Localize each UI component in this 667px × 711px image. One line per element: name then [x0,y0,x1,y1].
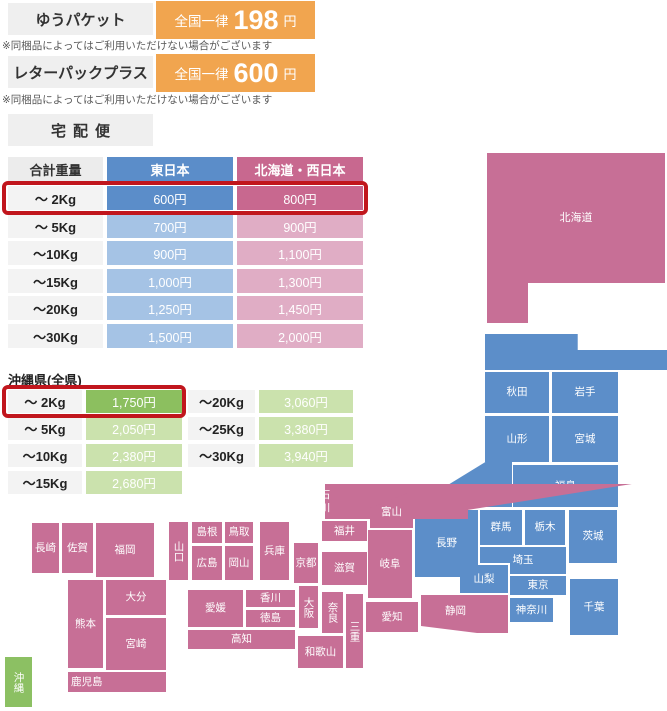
map-region-label: 徳島 [260,612,281,624]
okinawa-rate-cell: 3,380円 [259,417,353,440]
map-region-saga: 佐賀 [62,523,93,573]
letter-pack-rate-badge: 全国一律 600 円 [156,54,315,92]
map-region-label: 沖縄 [12,672,24,693]
map-region-label: 愛知 [382,611,403,623]
map-region-kagoshima: 鹿児島 [68,672,166,692]
map-region-label: 茨城 [583,530,604,542]
map-region-hokkaido-ext [487,283,528,323]
map-region-hokkaido: 北海道 [487,153,665,283]
map-region-label: 栃木 [535,521,556,533]
map-region-oita: 大分 [106,580,166,615]
okinawa-rate-cell: 2,380円 [86,444,182,467]
map-region-yamagata: 山形 [485,416,549,462]
okinawa-weight-cell: 〜 5Kg [8,417,82,440]
map-region-tochigi: 栃木 [525,510,565,545]
map-region-label: 佐賀 [67,542,88,554]
weight-cell: 〜10Kg [8,241,103,265]
map-region-okayama: 岡山 [225,546,253,580]
disclaimer-note: ※同梱品によってはご利用いただけない場合がございます [2,38,272,53]
map-region-mie: 三重 [346,594,363,668]
map-region-label: 鳥取 [229,526,250,538]
map-region-label: 岡山 [229,557,250,569]
map-region-label: 福井 [334,525,355,537]
map-region-shimane: 島根 [192,522,222,543]
map-region-iwate: 岩手 [552,372,618,413]
map-region-label: 大阪 [302,597,314,618]
okinawa-rate-cell: 3,060円 [259,390,353,413]
map-region-label: 奈良 [326,602,338,623]
map-region-label: 宮城 [575,433,596,445]
rate-amount: 198 [233,7,278,34]
weight-cell: 〜15Kg [8,269,103,293]
map-region-nara: 奈良 [322,592,343,633]
rate-cell-east: 1,500円 [107,324,233,348]
map-region-label: 鹿児島 [71,676,103,688]
rate-cell-west: 1,450円 [237,296,363,320]
map-region-okinawa: 沖縄 [5,657,32,707]
map-region-label: 群馬 [491,521,512,533]
map-region-hiroshima: 広島 [192,546,222,580]
map-region-label: 三重 [348,621,360,642]
map-region-kagawa: 香川 [246,590,295,607]
yu-packet-label: ゆうパケット [8,3,153,35]
map-region-label: 愛媛 [205,602,226,614]
rate-prefix: 全国一律 [174,63,228,83]
map-region-fukui: 福井 [322,521,367,541]
map-region-label: 山口 [172,541,184,562]
map-region-aomori: 青森 [485,334,667,370]
map-region-label: 石川 [320,489,331,513]
shipping-rates-page: ゆうパケット 全国一律 198 円 ※同梱品によってはご利用いただけない場合がご… [0,0,667,711]
map-region-label: 長野 [436,537,457,549]
map-region-label: 富山 [381,506,402,518]
okinawa-weight-cell: 〜30Kg [188,444,255,467]
rate-cell-east: 900円 [107,241,233,265]
map-region-label: 大分 [126,591,147,603]
rate-unit: 円 [284,64,297,83]
map-region-label: 宮崎 [126,638,147,650]
takuhai-title: 宅配便 [8,114,153,146]
map-region-miyazaki: 宮崎 [106,618,166,670]
map-region-label: 高知 [231,633,252,645]
map-region-label: 千葉 [584,601,605,613]
map-region-gunma: 群馬 [480,510,522,545]
map-region-kanagawa: 神奈川 [510,598,553,622]
map-region-aichi: 愛知 [366,602,418,632]
map-region-nagasaki: 長崎 [32,523,59,573]
okinawa-weight-cell: 〜10Kg [8,444,82,467]
map-region-akita: 秋田 [485,372,549,413]
map-region-osaka: 大阪 [299,586,318,628]
map-region-label: 静岡 [445,605,466,617]
weight-cell: 〜20Kg [8,296,103,320]
letter-pack-label: レターパックプラス [8,56,153,88]
map-region-label: 山形 [507,433,528,445]
map-region-gifu: 岐阜 [368,530,412,598]
map-region-hyogo: 兵庫 [260,522,289,580]
rate-cell-east: 1,250円 [107,296,233,320]
weight-cell: 〜30Kg [8,324,103,348]
map-region-label: 和歌山 [305,646,337,658]
map-region-label: 秋田 [507,386,528,398]
map-region-label: 京都 [296,557,317,569]
map-region-wakayama: 和歌山 [298,636,343,668]
map-region-kyoto: 京都 [294,543,318,583]
map-region-label: 島根 [197,526,218,538]
map-region-ibaraki: 茨城 [569,510,617,563]
map-region-label: 埼玉 [513,554,534,566]
rate-amount: 600 [233,60,278,87]
rate-cell-west: 1,300円 [237,269,363,293]
map-region-tottori: 鳥取 [225,522,253,543]
map-region-label: 北海道 [560,212,593,225]
okinawa-weight-cell: 〜25Kg [188,417,255,440]
rate-cell-west: 900円 [237,214,363,238]
map-region-label: 長崎 [35,542,56,554]
rate-cell-west: 1,100円 [237,241,363,265]
rate-cell-east: 1,000円 [107,269,233,293]
map-region-tokushima: 徳島 [246,610,295,627]
map-region-label: 山梨 [474,573,495,585]
okinawa-weight-cell: 〜20Kg [188,390,255,413]
map-region-label: 岩手 [575,386,596,398]
okinawa-rate-cell: 3,940円 [259,444,353,467]
map-region-kumamoto: 熊本 [68,580,103,668]
map-region-kochi: 高知 [188,630,295,649]
map-region-label: 熊本 [75,618,96,630]
disclaimer-note: ※同梱品によってはご利用いただけない場合がございます [2,92,272,107]
okinawa-weight-cell: 〜15Kg [8,471,82,494]
map-region-label: 福岡 [115,544,136,556]
map-region-label: 東京 [528,579,549,591]
header-weight: 合計重量 [8,157,103,181]
highlight-box-main-2kg [2,181,368,215]
rate-cell-east: 700円 [107,214,233,238]
map-region-chiba: 千葉 [570,579,618,635]
highlight-box-okinawa-2kg [2,385,186,418]
map-region-shiga: 滋賀 [322,552,367,585]
map-region-label: 兵庫 [264,545,285,557]
weight-cell: 〜 5Kg [8,214,103,238]
rate-unit: 円 [284,11,297,30]
map-region-label: 岐阜 [380,558,401,570]
map-region-label: 広島 [197,557,218,569]
rate-cell-west: 2,000円 [237,324,363,348]
map-region-label: 香川 [260,592,281,604]
okinawa-rate-cell: 2,050円 [86,417,182,440]
rate-prefix: 全国一律 [174,10,228,30]
map-region-yamanashi: 山梨 [460,565,508,593]
map-region-label: 神奈川 [516,604,548,616]
map-region-yamaguchi: 山口 [169,522,188,580]
header-east-japan: 東日本 [107,157,233,181]
map-region-tokyo: 東京 [510,576,566,595]
map-region-label: 滋賀 [334,562,355,574]
map-region-miyagi: 宮城 [552,416,618,462]
yu-packet-rate-badge: 全国一律 198 円 [156,1,315,39]
okinawa-rate-cell: 2,680円 [86,471,182,494]
map-region-ehime: 愛媛 [188,590,243,627]
map-region-shizuoka: 静岡 [421,595,508,633]
header-hokkaido-west-japan: 北海道・西日本 [237,157,363,181]
map-region-fukuoka: 福岡 [96,523,154,577]
